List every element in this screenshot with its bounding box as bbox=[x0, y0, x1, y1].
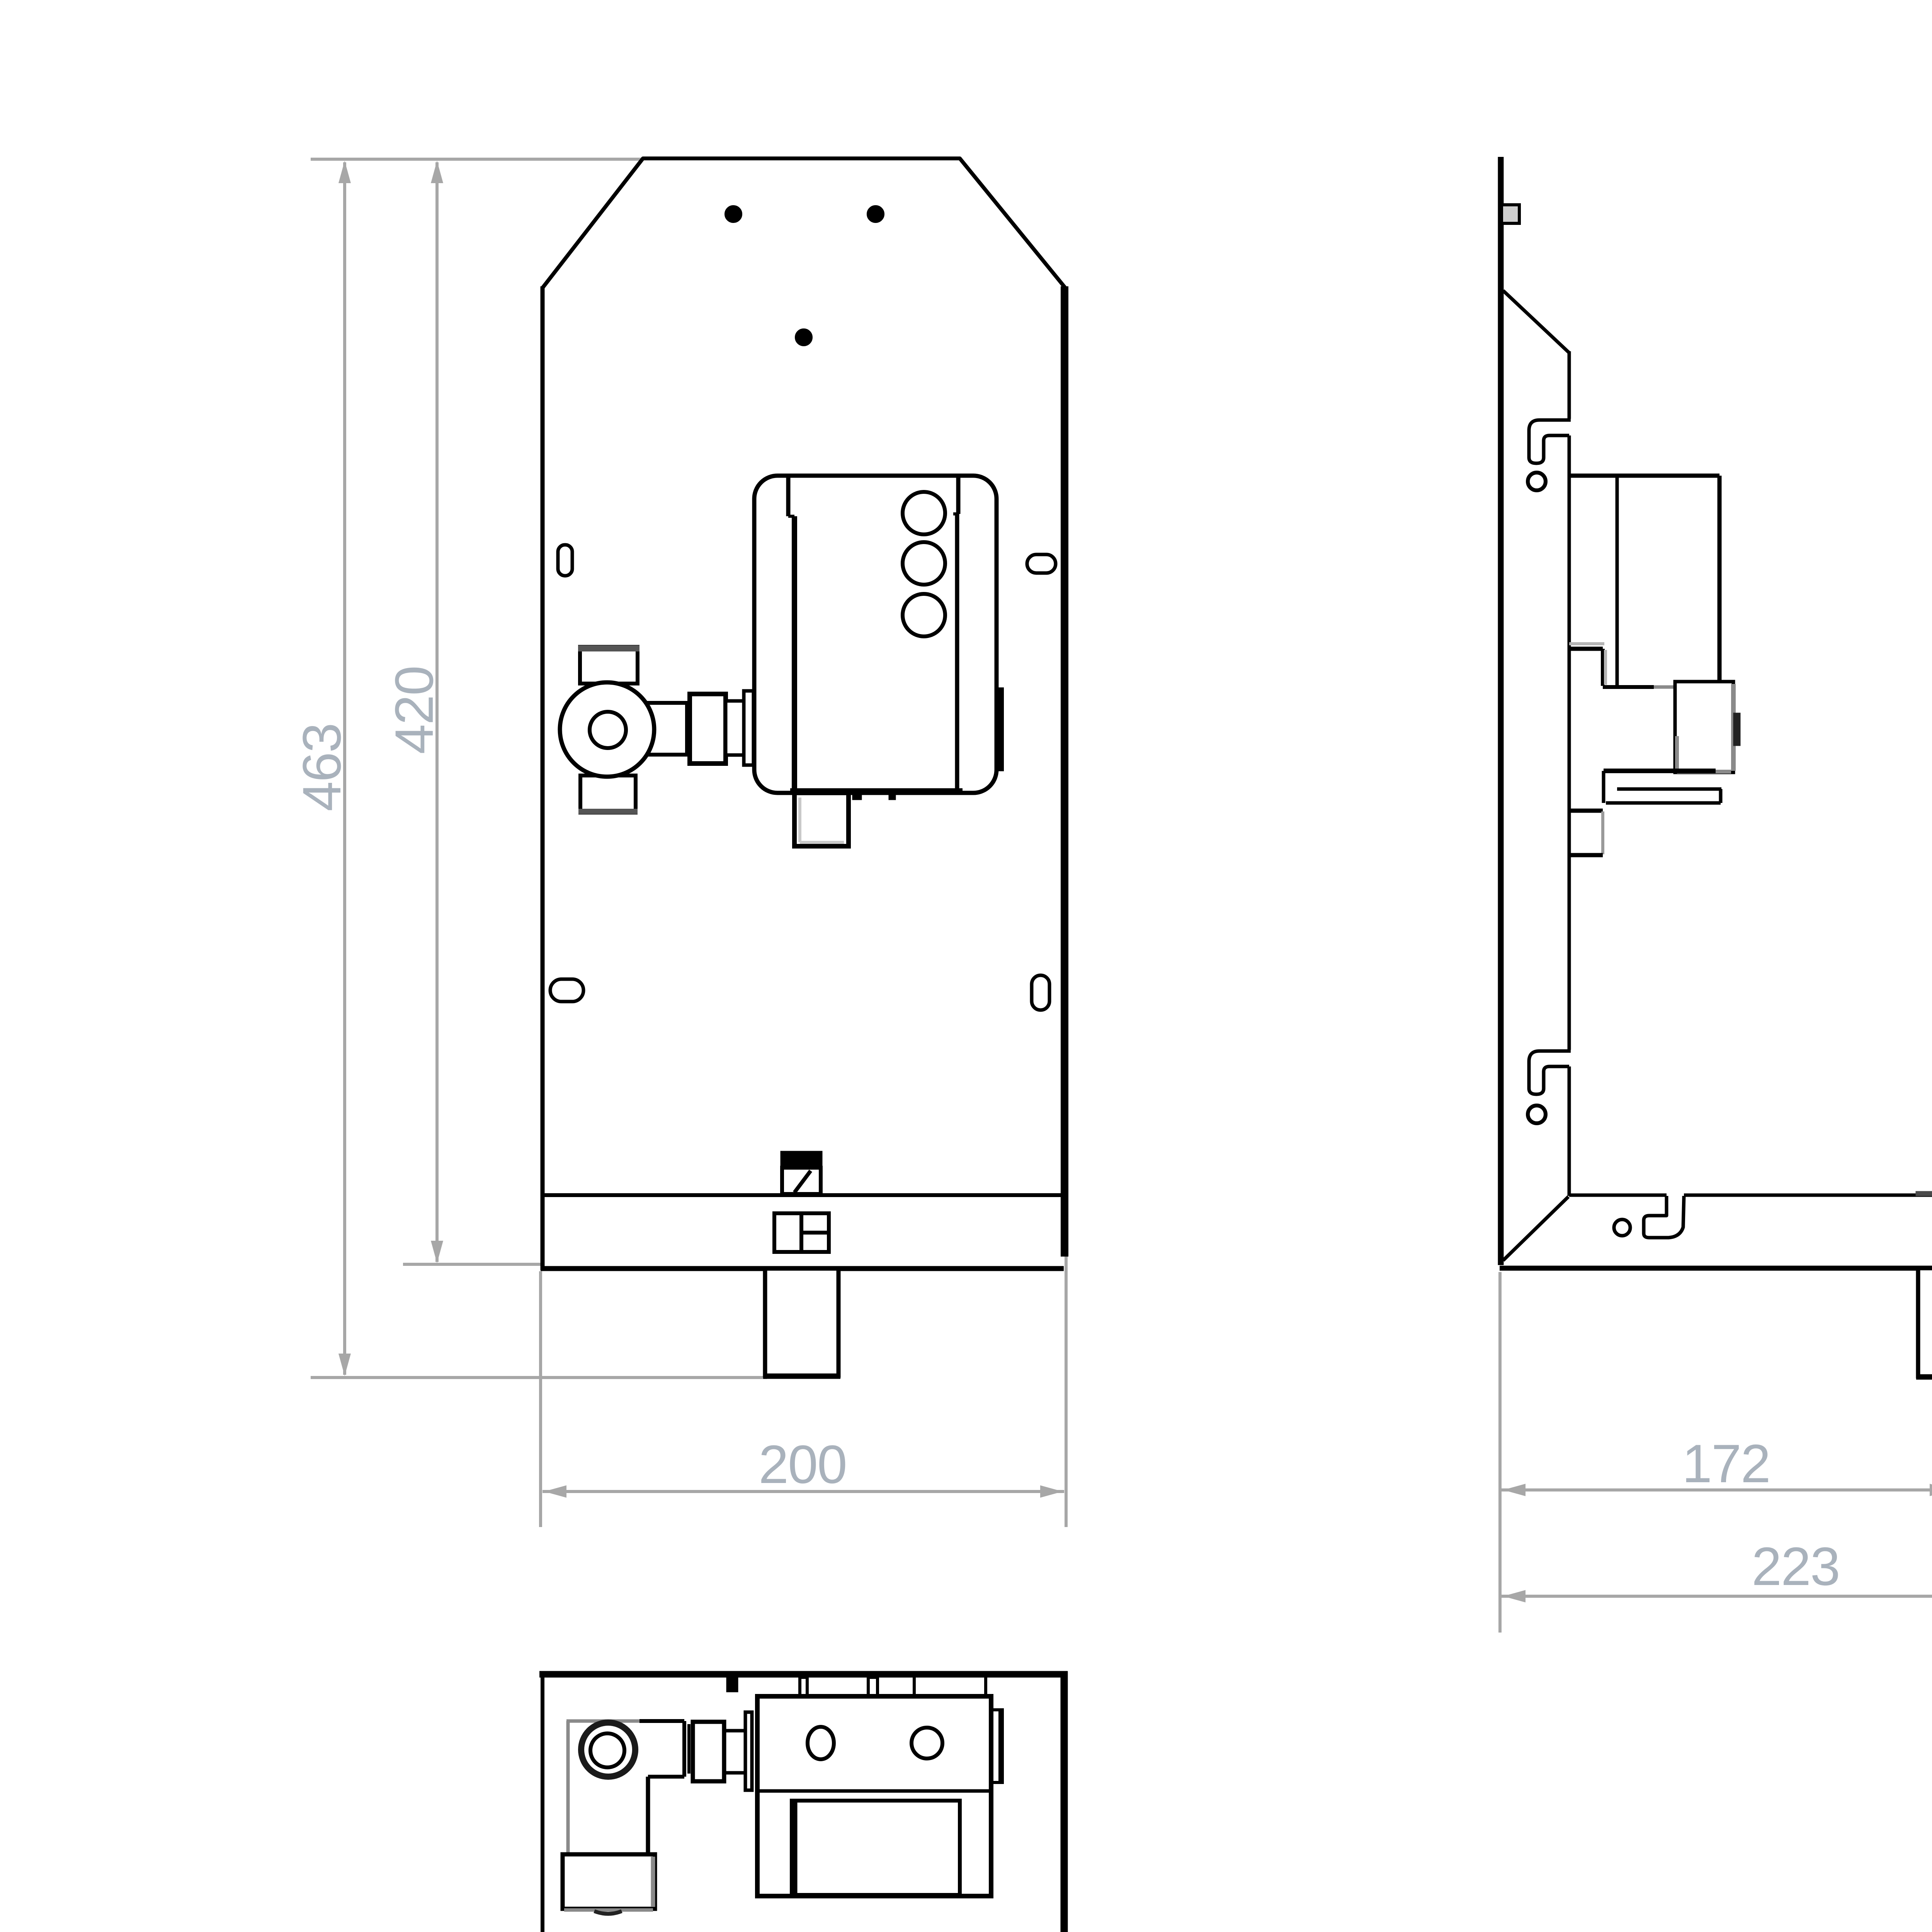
svg-text:420: 420 bbox=[384, 666, 444, 754]
svg-text:463: 463 bbox=[291, 723, 352, 811]
svg-text:200: 200 bbox=[759, 1434, 847, 1495]
svg-text:223: 223 bbox=[1752, 1536, 1840, 1597]
svg-text:172: 172 bbox=[1682, 1433, 1770, 1494]
